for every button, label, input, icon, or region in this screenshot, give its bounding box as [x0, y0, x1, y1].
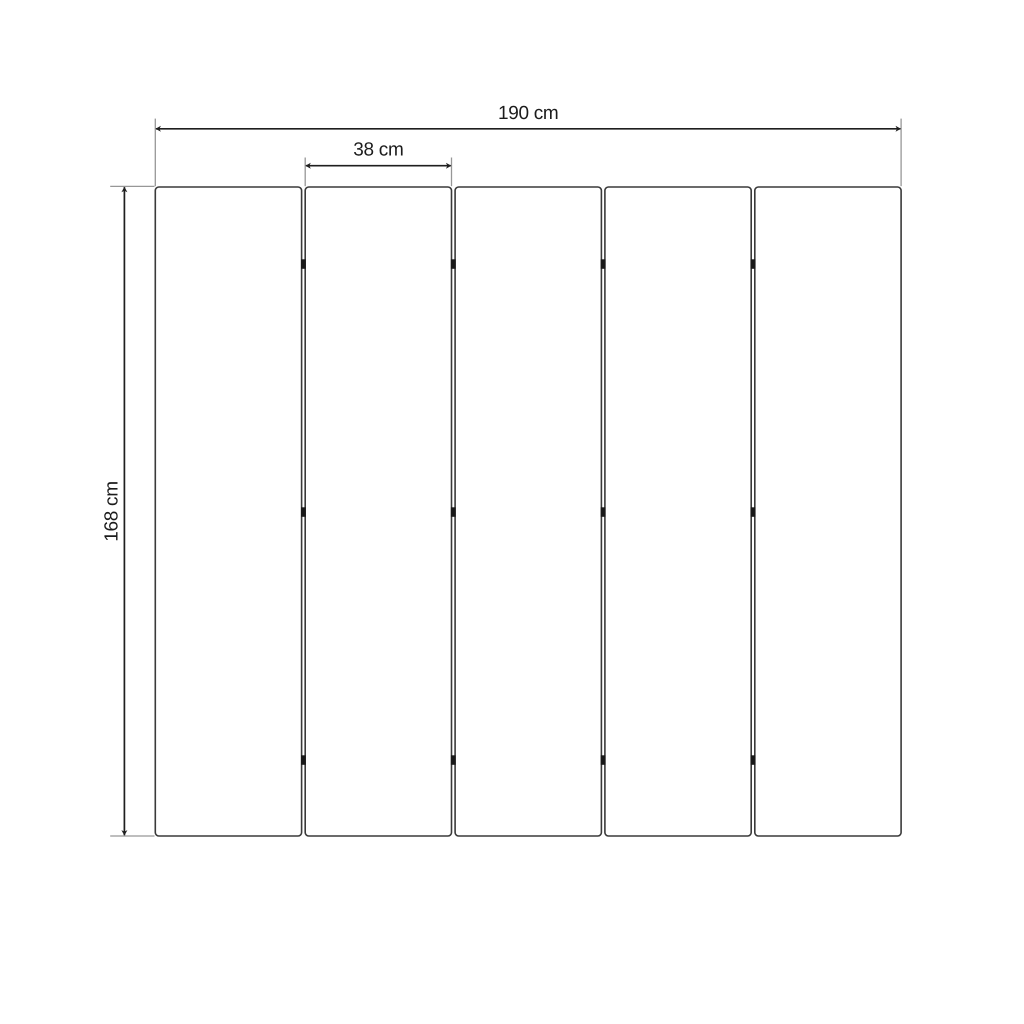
svg-text:38 cm: 38 cm — [353, 140, 403, 161]
svg-text:168 cm: 168 cm — [101, 481, 122, 542]
svg-text:190 cm: 190 cm — [498, 103, 559, 124]
